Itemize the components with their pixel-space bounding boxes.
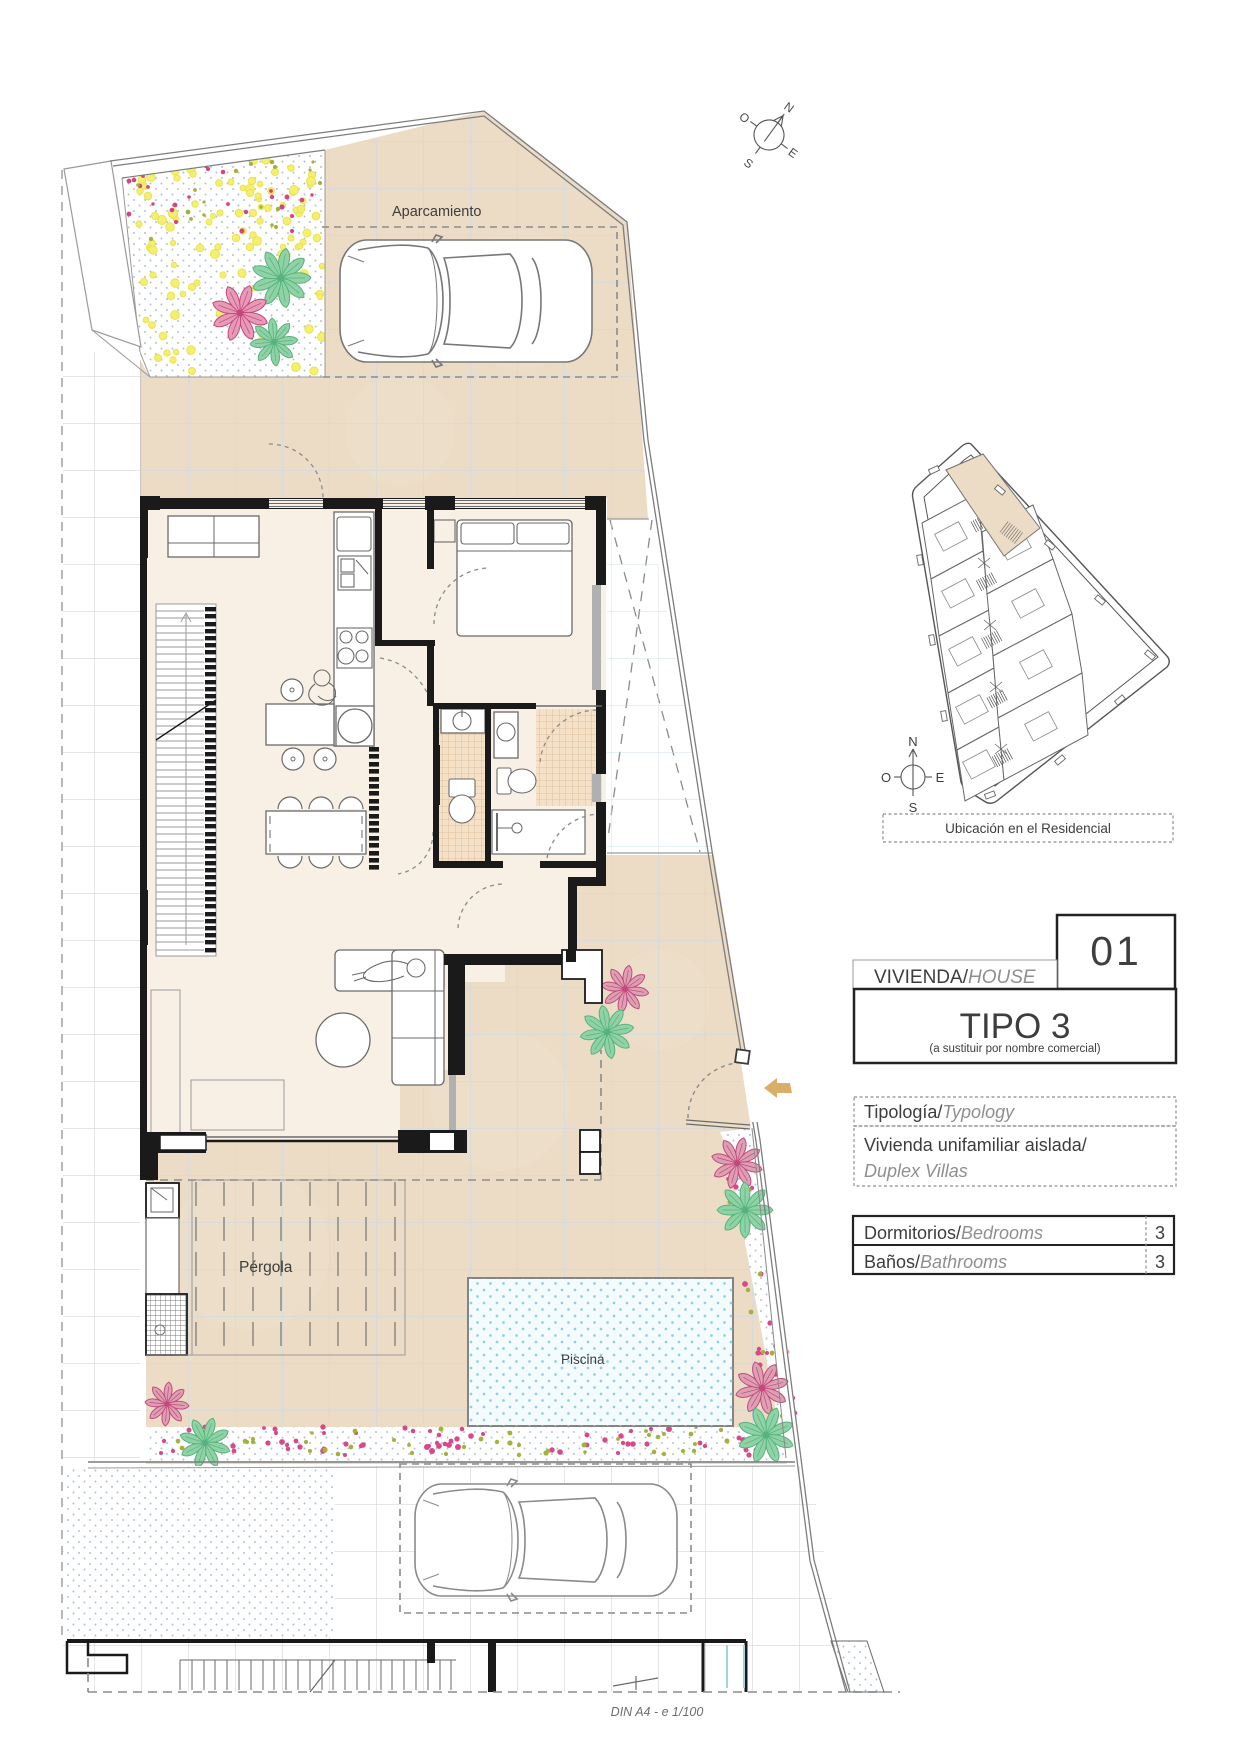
svg-text:VIVIENDA/HOUSE: VIVIENDA/HOUSE [874,967,1036,988]
svg-text:S: S [909,800,918,815]
svg-text:(a sustituir por nombre comerc: (a sustituir por nombre comercial) [929,1043,1100,1055]
svg-text:E: E [936,770,945,785]
svg-text:Piscina: Piscina [561,1352,605,1367]
svg-text:TIPO 3: TIPO 3 [960,1007,1071,1046]
svg-text:Duplex Villas: Duplex Villas [864,1161,968,1181]
svg-text:3: 3 [1155,1252,1165,1272]
svg-text:Baños/Bathrooms: Baños/Bathrooms [864,1252,1007,1272]
svg-text:Ubicación en el Residencial: Ubicación en el Residencial [945,821,1111,836]
svg-text:3: 3 [1155,1223,1165,1243]
svg-text:Vivienda unifamiliar aislada/: Vivienda unifamiliar aislada/ [864,1135,1087,1155]
svg-text:Aparcamiento: Aparcamiento [392,204,481,220]
svg-text:Dormitorios/Bedrooms: Dormitorios/Bedrooms [864,1223,1043,1243]
svg-text:Pérgola: Pérgola [239,1259,293,1276]
svg-text:O: O [881,770,891,785]
svg-text:Tipología/Typology: Tipología/Typology [864,1102,1015,1122]
svg-text:N: N [908,734,917,749]
svg-text:01: 01 [1090,928,1142,974]
svg-text:DIN A4 - e 1/100: DIN A4 - e 1/100 [611,1705,704,1719]
